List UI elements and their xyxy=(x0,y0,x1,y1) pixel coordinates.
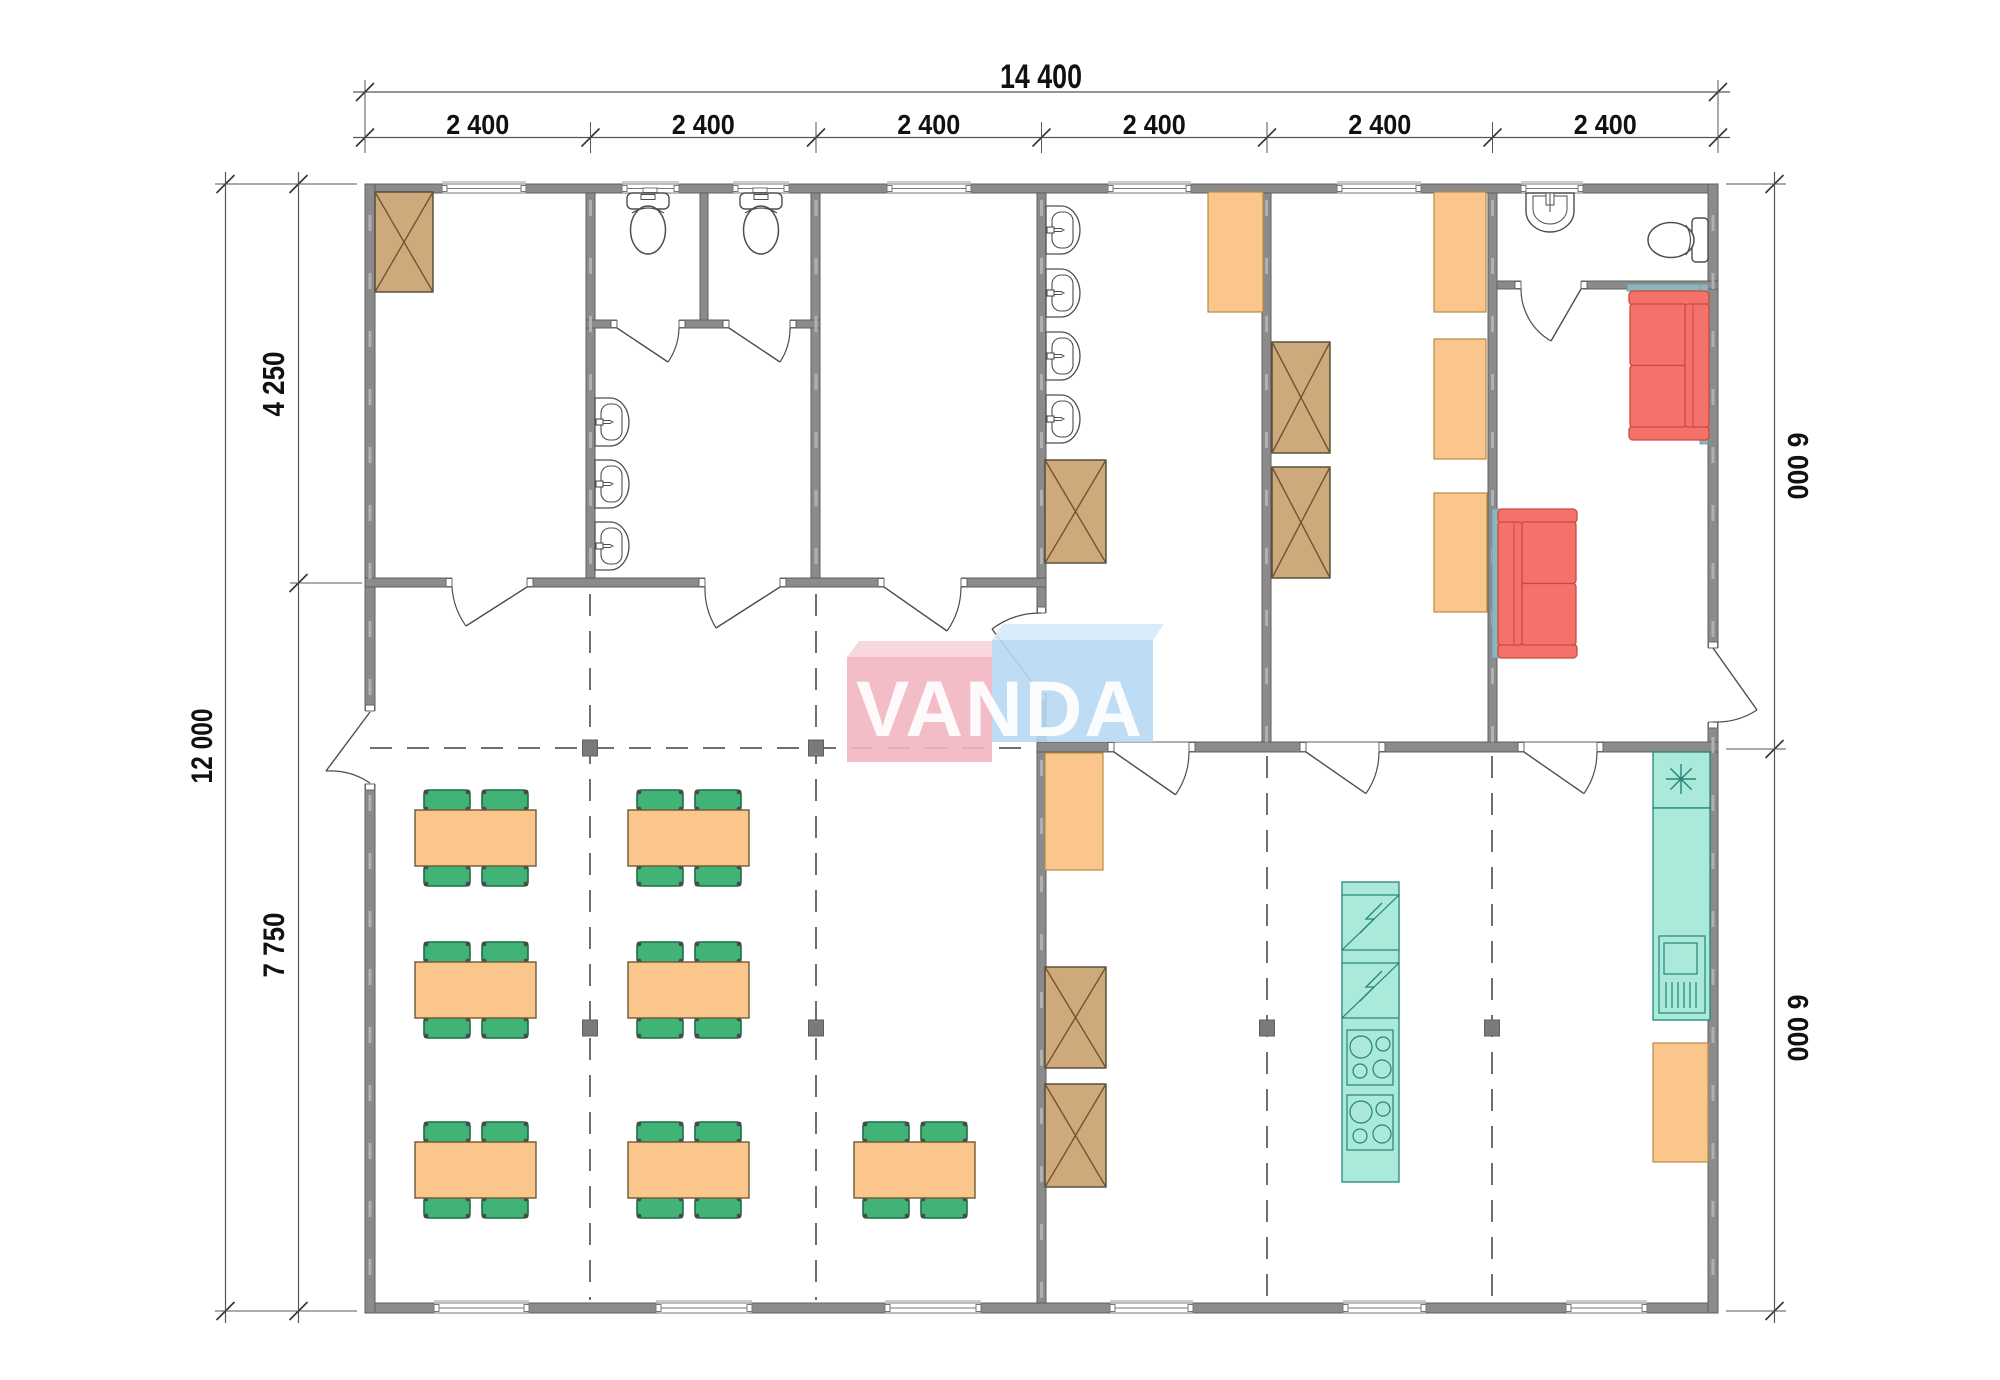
svg-text:6 000: 6 000 xyxy=(1781,433,1813,500)
svg-text:6 000: 6 000 xyxy=(1781,995,1813,1062)
svg-text:VANDA: VANDA xyxy=(856,664,1144,753)
svg-text:2 400: 2 400 xyxy=(446,109,509,140)
svg-text:14 400: 14 400 xyxy=(1000,58,1082,96)
svg-text:7 750: 7 750 xyxy=(258,913,291,978)
svg-text:4 250: 4 250 xyxy=(256,352,291,417)
svg-text:12 000: 12 000 xyxy=(186,709,219,784)
svg-text:2 400: 2 400 xyxy=(1348,109,1411,140)
svg-text:2 400: 2 400 xyxy=(672,109,735,140)
svg-text:2 400: 2 400 xyxy=(897,109,960,140)
svg-text:2 400: 2 400 xyxy=(1574,109,1637,140)
svg-text:2 400: 2 400 xyxy=(1123,109,1186,140)
